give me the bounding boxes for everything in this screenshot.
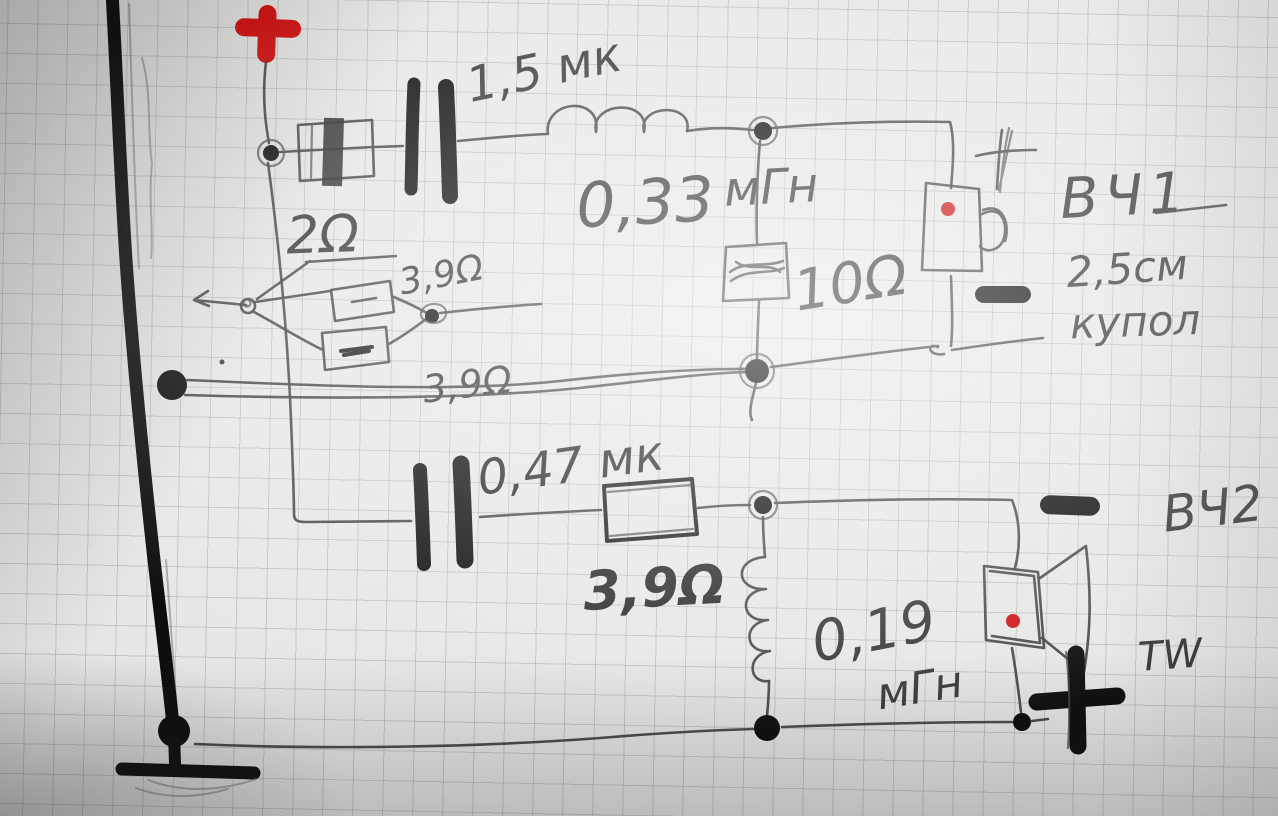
node5-dot: [754, 715, 780, 741]
bus-pencil-wisp: [142, 58, 152, 258]
inductor1-unit-label: мГн: [722, 157, 819, 218]
lead-resistor-b-to-node: [389, 319, 426, 344]
input-plus-terminal: +: [234, 4, 302, 64]
cap1-plate-left: [411, 84, 414, 189]
lead-node-to-resistor-b: [254, 312, 323, 350]
speaker2-kind-label: TW: [1137, 630, 1205, 680]
resistor2-symbol: [604, 479, 697, 541]
bottom-rail-right: [782, 719, 1048, 727]
resistor-a-dash: [352, 298, 376, 302]
wire-coil1-to-node2: [687, 128, 753, 131]
minus-bus: [112, 0, 256, 796]
shunt-scribble: [730, 261, 784, 281]
cap2-plate-left: [420, 470, 424, 564]
labels: 1,5 мк 0,33 мГн 2Ω 3,9Ω 3,9Ω 10Ω ВЧ1 2,5…: [285, 27, 1266, 721]
ground-stub: [174, 733, 175, 764]
wire-cap1-to-coil1: [458, 134, 547, 141]
wire-node4-right: [775, 499, 1019, 568]
resistor2-value-label: 3,9Ω: [582, 553, 727, 623]
cap1-plate-right: [446, 87, 450, 196]
plus-icon-horizontal: [235, 18, 302, 38]
ground-scribble: [136, 779, 256, 796]
wire-cap2-to-resistor: [480, 510, 601, 517]
speaker1-plus-icon: +: [976, 128, 1036, 192]
wire-tweeter-return: [1012, 648, 1021, 712]
bus-line: [112, 0, 173, 725]
speaker1-symbol: + −: [922, 128, 1036, 303]
wire-speaker1-return: [951, 276, 952, 346]
speaker1-size-label: 2,5см: [1065, 240, 1190, 297]
node2-dot: [754, 122, 772, 140]
speaker1-kind-label: купол: [1069, 295, 1201, 349]
combined-resistance-label: 2Ω: [285, 204, 360, 267]
schematic-drawing: +: [0, 0, 1278, 816]
speaker2-name-label: ВЧ2: [1159, 474, 1266, 544]
schematic-photo: +: [0, 0, 1278, 816]
arrow-to-bus: [194, 291, 246, 306]
speaker2-plus-icon: +: [1037, 652, 1117, 748]
speaker1-name-label: ВЧ1: [1058, 160, 1192, 232]
wire-fusebox-to-cap1: [375, 146, 403, 147]
red-dot-marker-1: [941, 202, 955, 216]
wire-node4-to-coil2: [763, 517, 765, 557]
speaker1-minus-icon: −: [975, 286, 1031, 303]
speaker1-body: [922, 183, 982, 271]
wire-shunt-to-node3: [757, 301, 759, 359]
node1-dot: [263, 145, 279, 161]
bottom-rail-left: [195, 729, 753, 747]
shunt-resistor-label: 10Ω: [789, 242, 912, 324]
attenuator-network: [194, 256, 541, 370]
node3-dot: [745, 359, 769, 383]
inductor1-value-label: 0,33: [574, 162, 716, 242]
red-dot-marker-2: [1006, 614, 1020, 628]
right-node-stub: [440, 304, 541, 313]
box-inner-line: [311, 126, 312, 178]
shunt-resistor-symbol: [723, 243, 789, 301]
resistor-b-dash: [341, 347, 372, 355]
resistor2-outline-ghost: [608, 485, 693, 536]
inductor2-symbol: [742, 557, 770, 681]
wire-resistor-to-node4: [698, 505, 750, 508]
node4-dot: [754, 496, 772, 514]
mid-bus-junction-dot: [157, 370, 187, 400]
minus-bar: [975, 286, 1031, 303]
ground-bar: [122, 769, 254, 773]
parallel-resistor-b-label: 3,9Ω: [420, 357, 514, 412]
inductor2-unit-label: мГн: [873, 656, 966, 720]
parallel-resistor-a-label: 3,9Ω: [396, 247, 488, 304]
wire-plus-to-node: [264, 62, 269, 143]
tweeter-body: [984, 566, 1044, 648]
dome-icon: [980, 208, 1007, 250]
node6-dot: [1013, 713, 1031, 731]
minus-bar-2: [1040, 495, 1101, 516]
cap2-plate-right: [461, 464, 465, 560]
speaker2-minus-icon: −: [1040, 495, 1101, 516]
left-node-curl-inner: [244, 300, 251, 307]
capacitor1-symbol: [411, 84, 450, 196]
plus2-stroke-h: [1037, 696, 1117, 702]
cap1-value-label: 1,5 мк: [461, 27, 626, 114]
stray-pencil-dot: [220, 360, 225, 365]
boxed-element-symbol: [298, 118, 374, 186]
capacitor2-symbol: [420, 464, 465, 564]
speaker2-symbol: − +: [984, 495, 1117, 748]
cap2-value-label: 0,47 мк: [474, 425, 667, 507]
wire-coil2-to-node5: [767, 681, 769, 716]
box-dark-plate: [332, 118, 334, 186]
mid-rail-right: [771, 338, 1043, 367]
inductor1-symbol: [548, 106, 688, 134]
